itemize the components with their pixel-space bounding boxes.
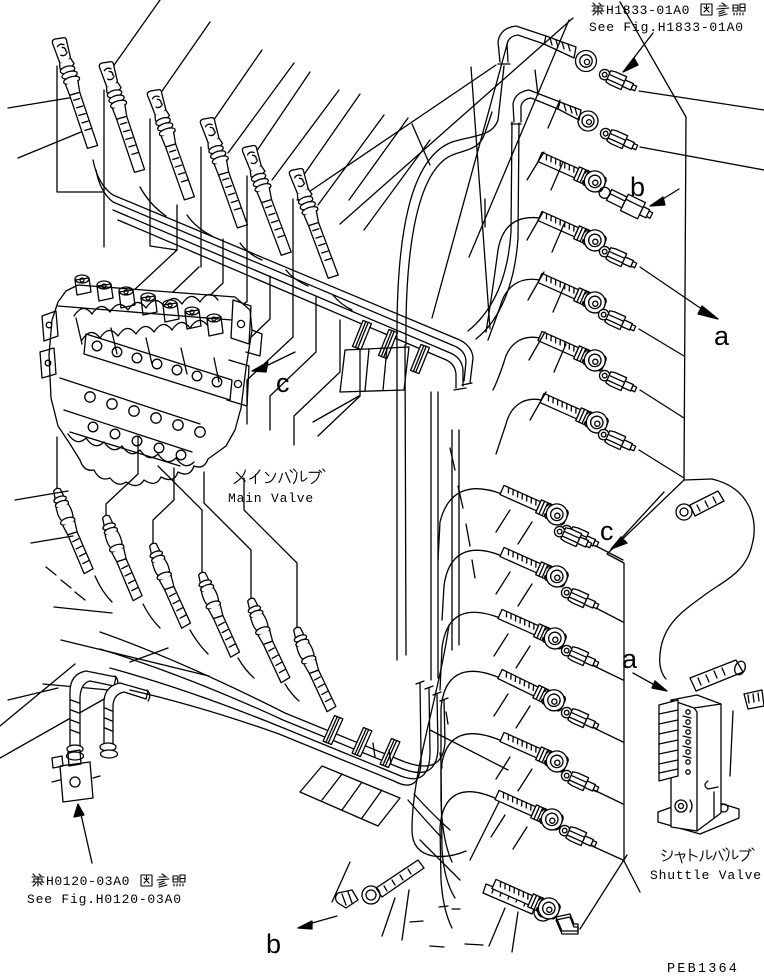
svg-text:Shuttle Valve: Shuttle Valve: [650, 868, 762, 883]
svg-text:a: a: [622, 644, 638, 674]
svg-text:b: b: [266, 929, 281, 959]
svg-text:a: a: [714, 321, 730, 351]
svg-text:c: c: [276, 368, 290, 398]
svg-text:PEB1364: PEB1364: [667, 962, 739, 977]
svg-text:See Fig.H1833-01A0: See Fig.H1833-01A0: [589, 20, 744, 35]
svg-text:Main Valve: Main Valve: [228, 491, 314, 506]
svg-text:H0120-03A0: H0120-03A0: [46, 874, 130, 889]
svg-text:c: c: [600, 516, 614, 546]
svg-text:b: b: [630, 172, 645, 202]
svg-text:See Fig.H0120-03A0: See Fig.H0120-03A0: [27, 892, 182, 907]
svg-text:H1833-01A0: H1833-01A0: [606, 3, 690, 18]
